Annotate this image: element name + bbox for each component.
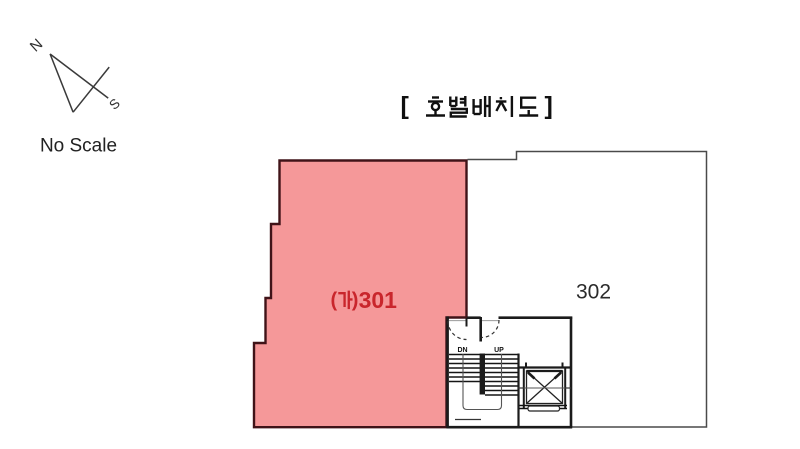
svg-text:(: ( — [331, 290, 338, 312]
svg-text:302: 302 — [576, 281, 611, 304]
svg-text:DN: DN — [457, 347, 467, 354]
svg-text:S: S — [106, 96, 123, 113]
svg-text:]: ] — [545, 92, 553, 120]
svg-text:): ) — [352, 290, 359, 312]
svg-text:No Scale: No Scale — [40, 136, 117, 157]
svg-text:301: 301 — [359, 287, 398, 313]
svg-text:[: [ — [401, 92, 410, 120]
svg-text:N: N — [27, 36, 46, 56]
svg-text:UP: UP — [494, 347, 504, 354]
